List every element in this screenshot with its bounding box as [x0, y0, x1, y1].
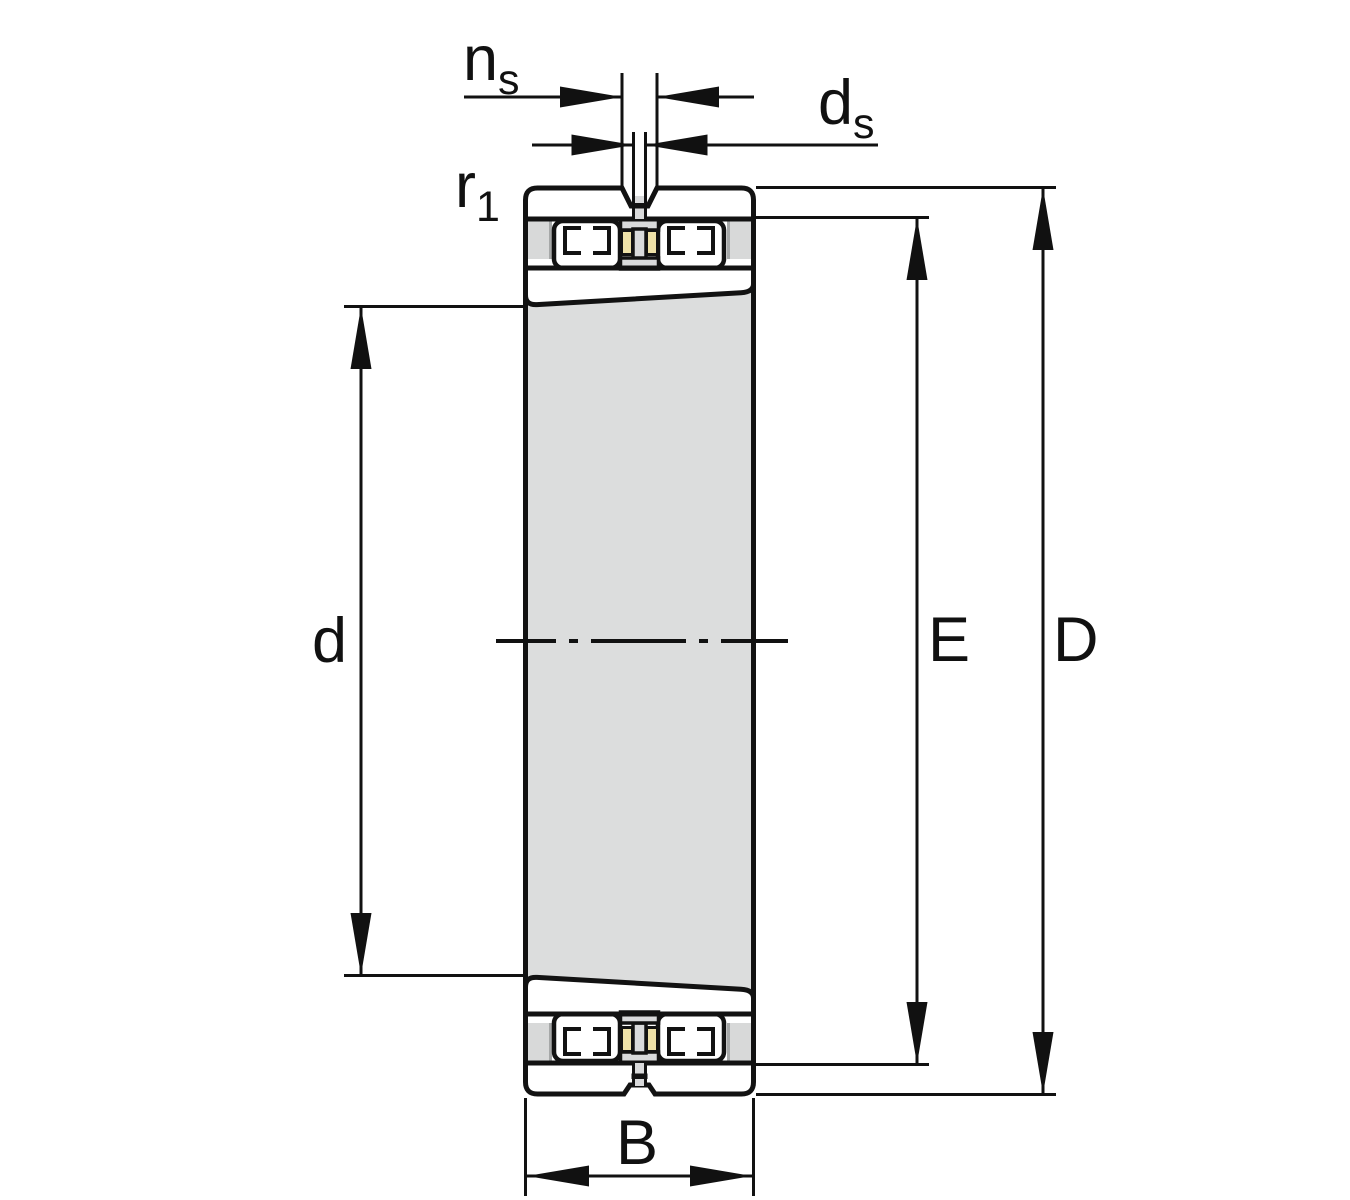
label-d: d	[312, 606, 347, 676]
extension-line	[756, 188, 1056, 1095]
dimension-b: B	[526, 1098, 754, 1196]
cage-guide-stem-b	[633, 1023, 646, 1053]
rib-land-bottom-right	[727, 1023, 752, 1063]
rib-land-top-left	[527, 219, 551, 259]
cage-guide-stem	[633, 229, 646, 259]
arrowhead	[351, 307, 372, 369]
rib-land-top-right	[727, 219, 752, 259]
arrowhead	[690, 1166, 752, 1187]
arrowhead	[560, 87, 622, 108]
rib-land-bottom-left	[527, 1023, 551, 1063]
cage-section	[622, 231, 633, 255]
cage-section	[622, 1028, 633, 1052]
cage-section	[647, 231, 658, 255]
label-outside-d: D	[1053, 605, 1099, 675]
arrowhead	[907, 218, 928, 280]
arrowhead	[657, 87, 719, 108]
cage-section	[647, 1028, 658, 1052]
arrowhead	[1033, 1032, 1054, 1094]
arrowhead	[351, 913, 372, 975]
label-e: E	[928, 605, 970, 675]
label-r1: r1	[455, 151, 500, 231]
dimension-d: d	[312, 307, 525, 976]
arrowhead	[646, 135, 708, 156]
technical-drawing-canvas: ns ds r1 d E D B	[0, 0, 1350, 1200]
label-ns: ns	[463, 24, 520, 104]
bearing-section-drawing: ns ds r1 d E D B	[0, 0, 1350, 1200]
label-b: B	[616, 1108, 658, 1178]
arrowhead	[1033, 188, 1054, 250]
label-ds: ds	[818, 68, 875, 148]
arrowhead	[527, 1166, 589, 1187]
dimension-ns: ns	[463, 24, 754, 186]
extension-line	[622, 73, 657, 186]
arrowhead	[572, 135, 634, 156]
arrowhead	[907, 1002, 928, 1064]
